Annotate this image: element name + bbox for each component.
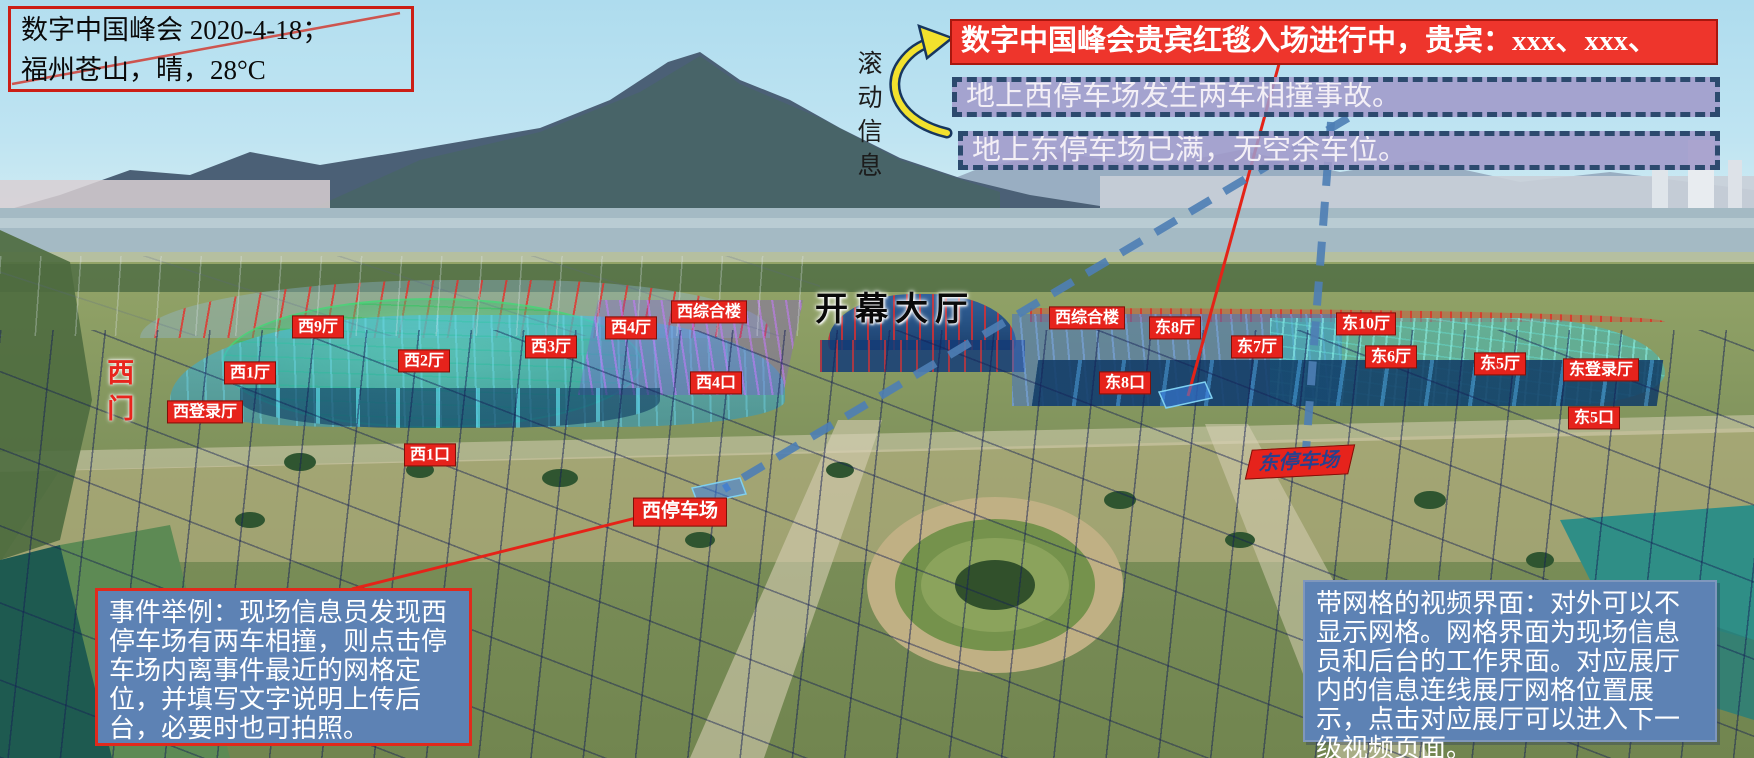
venue-label-xi-zonghe-lou-2[interactable]: 西综合楼 <box>1049 306 1125 329</box>
venue-label-dong-tingchechang[interactable]: 东停车场 <box>1245 444 1355 479</box>
venue-label-xi-tingchechang[interactable]: 西停车场 <box>633 498 727 527</box>
venue-label-xi-men[interactable]: 西门 <box>102 358 134 430</box>
venue-label-dong-denglu-ting[interactable]: 东登录厅 <box>1563 358 1639 381</box>
venue-label-xi-3-ting[interactable]: 西3厅 <box>525 335 577 358</box>
venue-label-dong-5-ting[interactable]: 东5厅 <box>1474 352 1526 375</box>
event-example-note: 事件举例：现场信息员发现西停车场有两车相撞，则点击停车场内离事件最近的网格定位，… <box>95 588 472 746</box>
venue-label-xi-denglu-ting[interactable]: 西登录厅 <box>167 400 243 423</box>
venue-monitoring-screen: 西9厅西2厅西1厅西登录厅西3厅西4厅西综合楼西4口开幕大厅西综合楼东8厅东8口… <box>0 0 1754 758</box>
grid-interface-note: 带网格的视频界面：对外可以不显示网格。网格界面为现场信息员和后台的工作界面。对应… <box>1303 580 1717 742</box>
venue-label-dong-7-ting[interactable]: 东7厅 <box>1231 335 1283 358</box>
east-parking-alert-dashed-line <box>1306 122 1331 450</box>
scroll-cycle-arrow-icon <box>895 26 952 133</box>
summit-info-box: 数字中国峰会 2020-4-18； 福州苍山，晴，28°C <box>8 6 414 92</box>
summit-info-line1: 数字中国峰会 2020-4-18； <box>21 10 401 50</box>
event-box-to-west-parking-line <box>352 517 640 589</box>
east8-gate-grid-cell-highlight[interactable] <box>1159 382 1212 408</box>
summit-info-line2: 福州苍山，晴，28°C <box>21 50 401 90</box>
venue-label-xi-zonghe-lou[interactable]: 西综合楼 <box>671 300 747 323</box>
west-parking-accident-banner[interactable]: 地上西停车场发生两车相撞事故。 <box>952 77 1720 117</box>
venue-label-dong-6-ting[interactable]: 东6厅 <box>1365 345 1417 368</box>
venue-label-xi-1-kou[interactable]: 西1口 <box>404 443 456 466</box>
scrolling-info-label: 滚动信息 <box>849 50 885 186</box>
venue-label-xi-1-ting[interactable]: 西1厅 <box>224 361 276 384</box>
venue-label-xi-4-ting[interactable]: 西4厅 <box>605 316 657 339</box>
venue-label-xi-2-ting[interactable]: 西2厅 <box>398 349 450 372</box>
vip-red-carpet-banner[interactable]: 数字中国峰会贵宾红毯入场进行中，贵宾：xxx、xxx、 <box>950 19 1718 65</box>
venue-label-dong-8-ting[interactable]: 东8厅 <box>1149 316 1201 339</box>
venue-label-xi-9-ting[interactable]: 西9厅 <box>292 315 344 338</box>
venue-label-xi-4-kou[interactable]: 西4口 <box>690 371 742 394</box>
venue-label-dong-10-ting[interactable]: 东10厅 <box>1336 312 1396 335</box>
east-parking-full-banner[interactable]: 地上东停车场已满，无空余车位。 <box>958 131 1720 170</box>
venue-label-dong-5-kou[interactable]: 东5口 <box>1568 406 1620 429</box>
venue-label-kaimu-dating[interactable]: 开幕大厅 <box>815 291 975 331</box>
venue-label-dong-8-kou[interactable]: 东8口 <box>1099 371 1151 394</box>
